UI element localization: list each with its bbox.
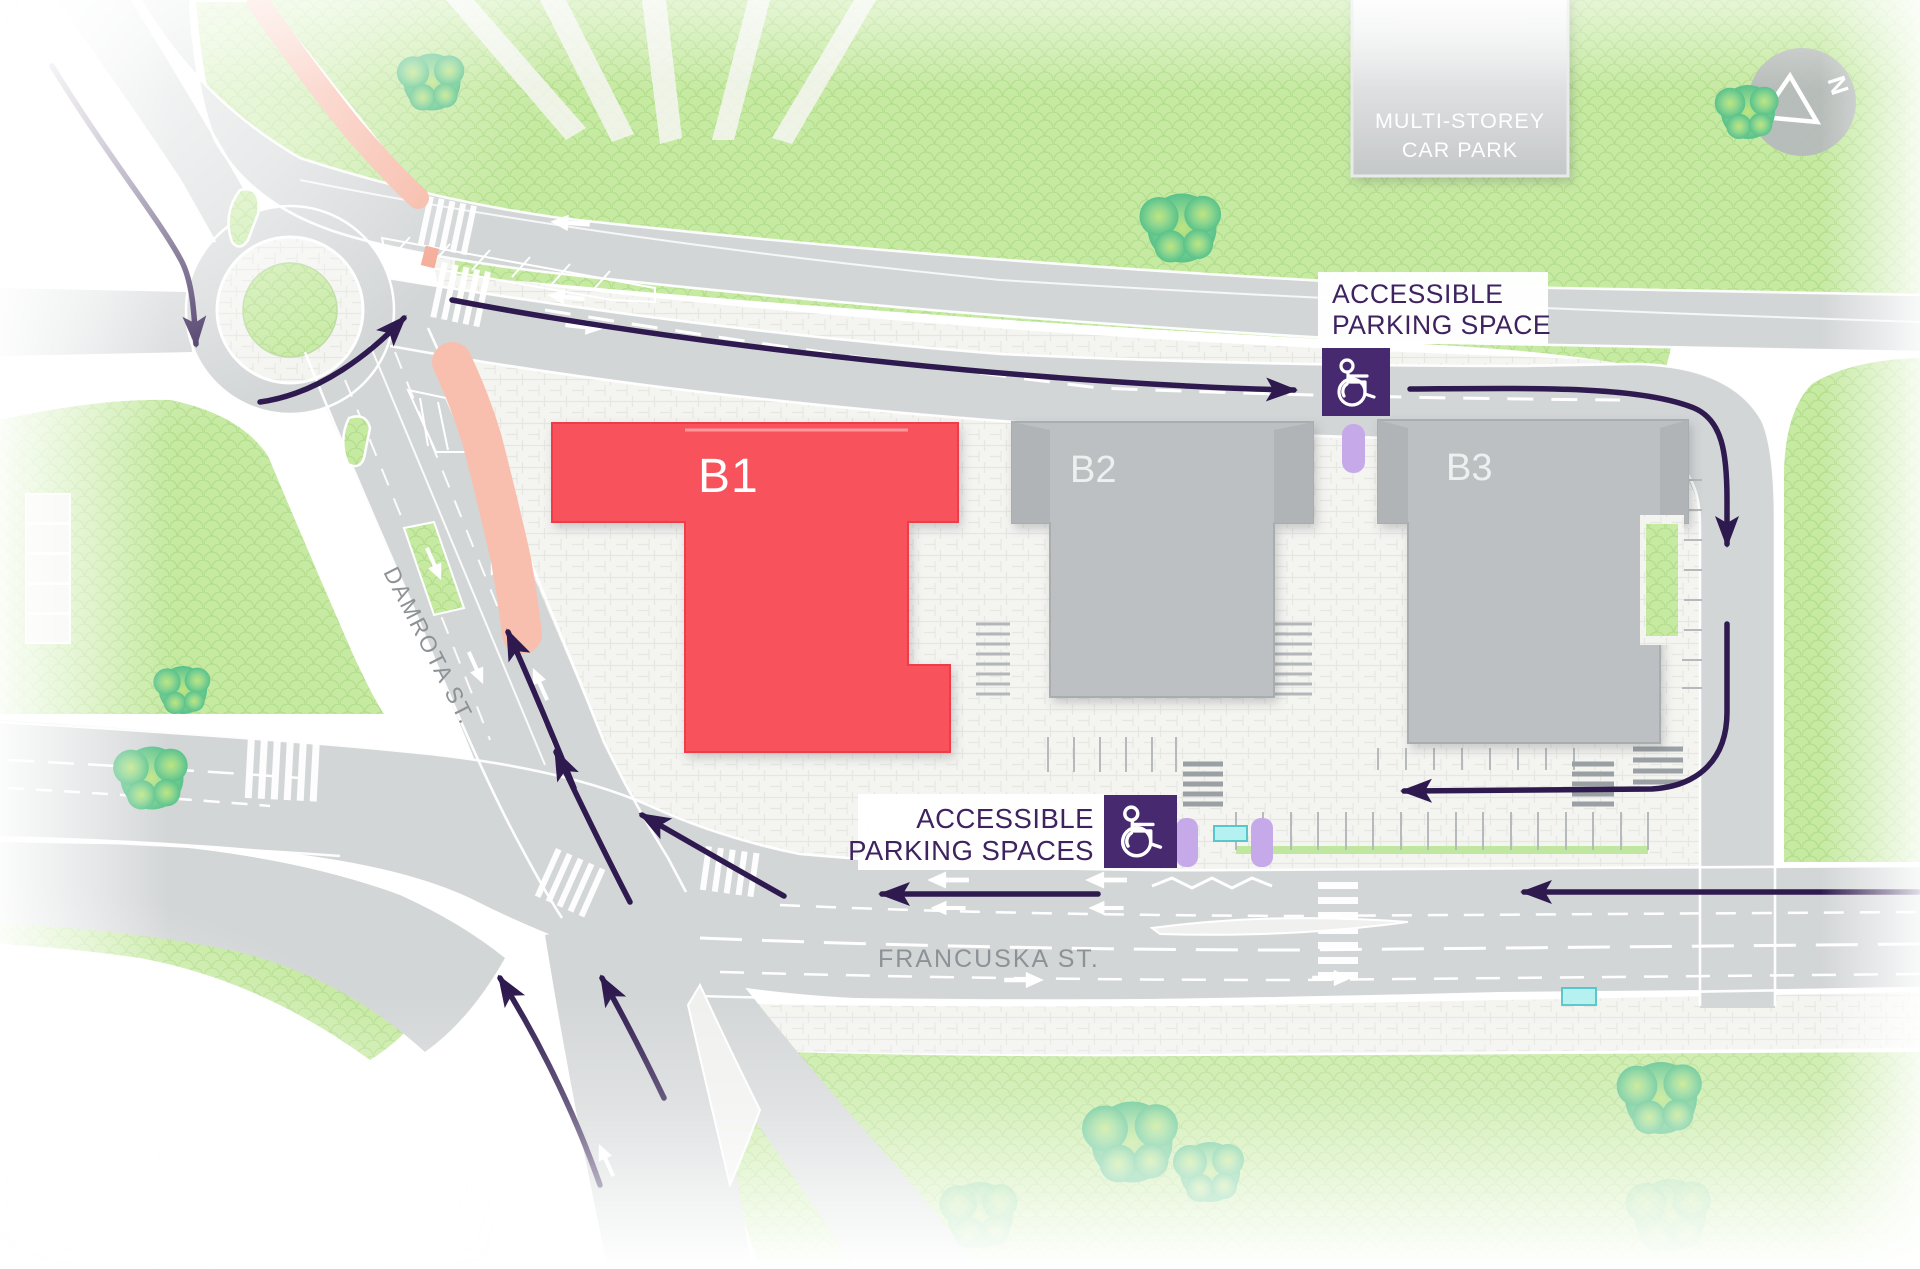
- roundabout-center: [243, 263, 337, 357]
- accessible-space-marker-1: [1342, 424, 1365, 473]
- sign-accessible-spaces: ACCESSIBLE PARKING SPACES: [848, 794, 1177, 870]
- accessible-space-marker-3: [1251, 818, 1273, 867]
- bus-shelter-2: [1562, 988, 1596, 1005]
- map-canvas: MULTI-STOREY CAR PARK B1 B2 B3 ACCESSIBL…: [0, 0, 1920, 1269]
- building-b2: [1012, 422, 1313, 697]
- road-west-stub: [0, 288, 192, 356]
- street-label-francuska: FRANCUSKA ST.: [878, 945, 1100, 973]
- car-park-label-line2: CAR PARK: [1402, 138, 1518, 162]
- b3-green-notch: [1646, 524, 1678, 636]
- street-parking-stalls: [26, 494, 70, 643]
- sign1-line1: ACCESSIBLE: [1332, 279, 1503, 309]
- sign1-line2: PARKING SPACE: [1332, 310, 1551, 340]
- building-b3-label: B3: [1446, 447, 1492, 489]
- bus-shelter-1: [1214, 826, 1247, 841]
- accessible-space-marker-2: [1176, 818, 1198, 867]
- building-b2-label: B2: [1070, 449, 1116, 491]
- sign2-line1: ACCESSIBLE: [916, 803, 1094, 834]
- car-park-label-line1: MULTI-STOREY: [1375, 109, 1545, 133]
- site-map: MULTI-STOREY CAR PARK B1 B2 B3 ACCESSIBL…: [0, 0, 1920, 1269]
- building-b1-label: B1: [698, 450, 759, 503]
- sign2-line2: PARKING SPACES: [848, 835, 1094, 866]
